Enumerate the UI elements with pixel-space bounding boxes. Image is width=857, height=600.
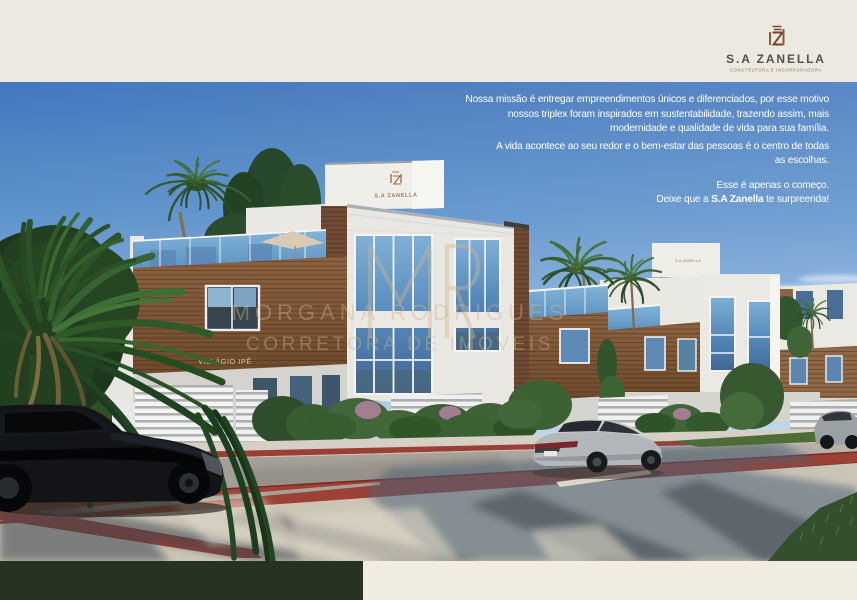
svg-text:S.A ZANELLA: S.A ZANELLA [726, 52, 826, 66]
svg-text:CONSTRUTORA E INCORPORADORA: CONSTRUTORA E INCORPORADORA [730, 68, 822, 73]
svg-text:MORGANA RODRIGUES: MORGANA RODRIGUES [232, 300, 569, 325]
svg-text:CORRETORA DE IMÓVEIS: CORRETORA DE IMÓVEIS [246, 333, 554, 355]
